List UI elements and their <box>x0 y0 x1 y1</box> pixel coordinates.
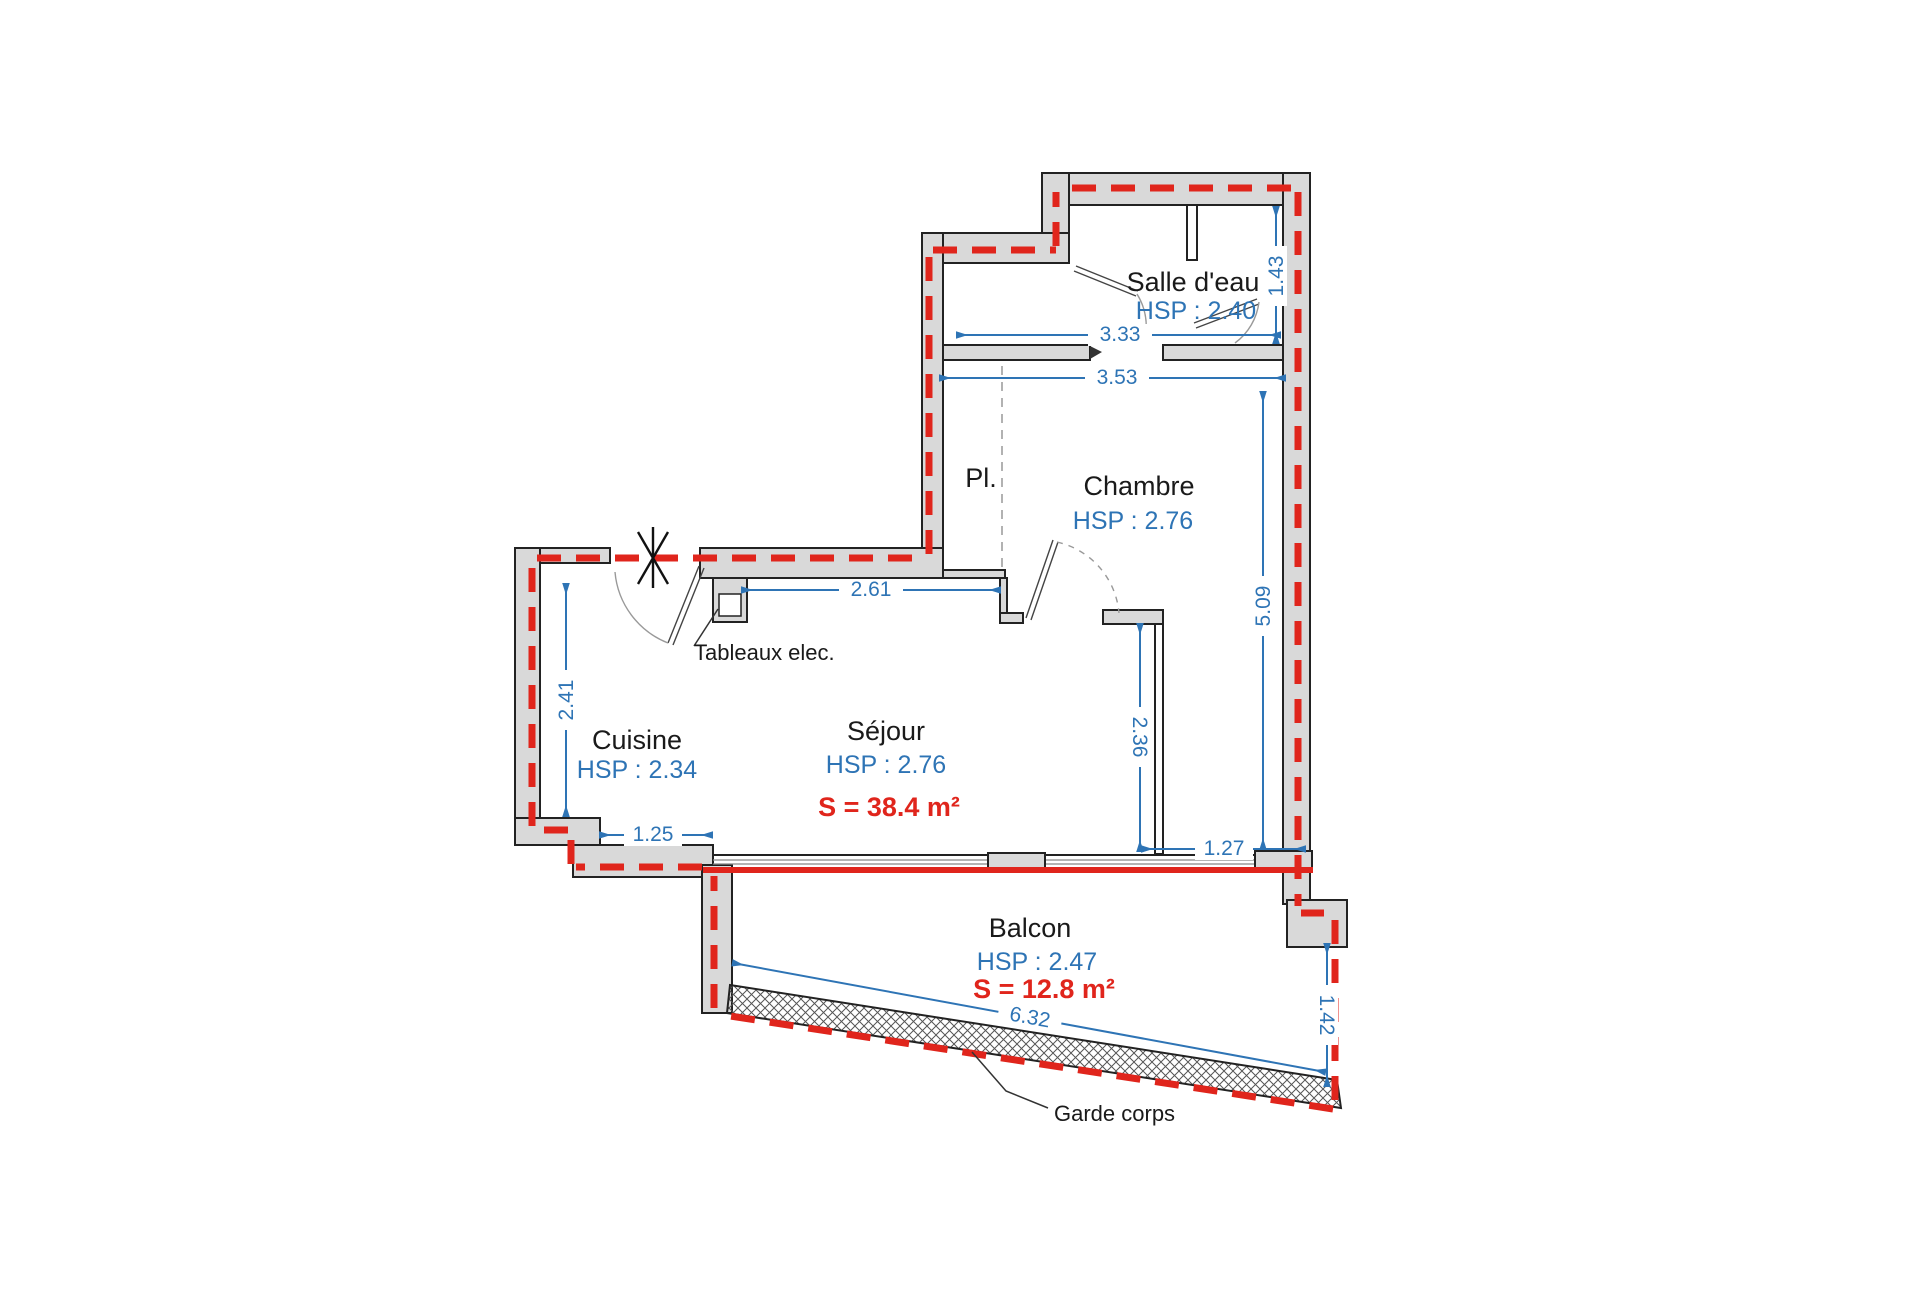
room-hsp-cuisine: HSP : 2.34 <box>577 756 698 784</box>
room-area-sejour: S = 38.4 m² <box>818 792 960 822</box>
dim-chambre-width: 3.53 <box>1097 366 1138 389</box>
dim-cuisine-depth: 2.41 <box>555 680 578 721</box>
annotation-tableaux-elec: Tableaux elec. <box>694 640 835 665</box>
room-label-chambre: Chambre <box>1083 471 1194 501</box>
wall-mid-left <box>922 233 943 578</box>
wall-door-jamb-left <box>1000 578 1007 616</box>
wall-door-stub <box>1000 613 1023 623</box>
wall-sejour-top <box>700 548 943 578</box>
room-label-salle-deau: Salle d'eau <box>1127 267 1260 297</box>
dimension-lines: 3.33 3.53 1.43 5.09 2.61 2.41 2.36 1.25 <box>555 207 1338 1086</box>
annotation-garde-corps: Garde corps <box>1054 1101 1175 1126</box>
dim-sejour-top-width: 2.61 <box>851 578 892 601</box>
wall-cuisine-left <box>515 548 540 833</box>
dim-chambre-height: 5.09 <box>1252 586 1275 627</box>
wall-door-jamb-right <box>1103 610 1163 624</box>
dim-cuisine-return: 1.25 <box>633 823 674 846</box>
dim-partition-length: 2.36 <box>1128 717 1151 758</box>
room-label-placard: Pl. <box>965 463 997 493</box>
room-area-balcon: S = 12.8 m² <box>973 974 1115 1004</box>
wall-placard-bottom <box>943 570 1005 578</box>
room-hsp-salle-deau: HSP : 2.40 <box>1136 297 1256 325</box>
wall-salle-deau-bottom-right <box>1163 345 1283 360</box>
dim-salle-deau-width: 3.33 <box>1100 323 1141 346</box>
window-mullion <box>988 853 1045 869</box>
dim-window-right-offset: 1.27 <box>1204 837 1245 860</box>
elec-panel <box>719 594 741 616</box>
floor-plan: 3.33 3.53 1.43 5.09 2.61 2.41 2.36 1.25 <box>0 0 1920 1309</box>
wall-salle-deau-bottom-left <box>940 345 1090 360</box>
wall-sejour-chambre-partition <box>1155 624 1163 854</box>
dim-balcon-length: 6.32 <box>1008 1002 1052 1032</box>
dim-wc-depth: 1.43 <box>1265 256 1288 297</box>
dim-balcon-right-depth: 1.42 <box>1315 995 1338 1036</box>
wall-wc-partition <box>1187 205 1197 260</box>
room-hsp-sejour: HSP : 2.76 <box>826 751 946 779</box>
room-label-cuisine: Cuisine <box>592 725 682 755</box>
room-label-balcon: Balcon <box>989 913 1072 943</box>
room-hsp-balcon: HSP : 2.47 <box>977 948 1097 976</box>
wall-cuisine-bottom <box>573 845 713 877</box>
room-label-sejour: Séjour <box>847 716 925 746</box>
room-hsp-chambre: HSP : 2.76 <box>1073 507 1193 535</box>
door-tip <box>1090 346 1102 359</box>
